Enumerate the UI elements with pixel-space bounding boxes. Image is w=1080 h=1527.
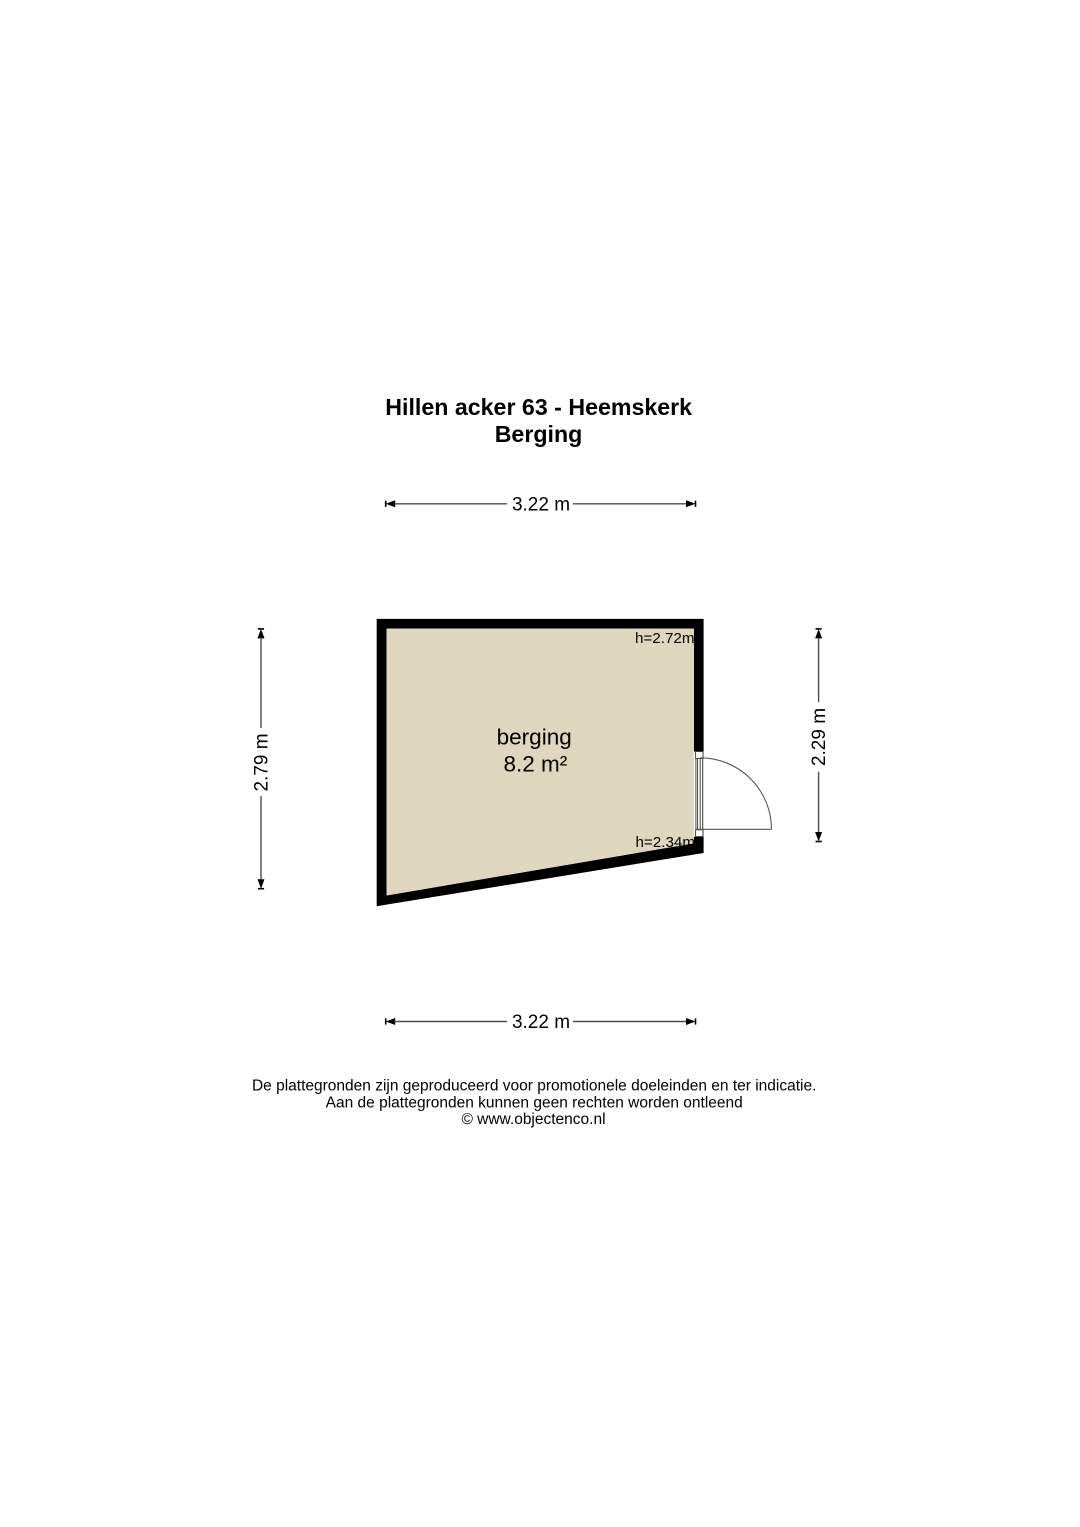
svg-text:Aan de plattegronden kunnen ge: Aan de plattegronden kunnen geen rechten…: [326, 1094, 743, 1111]
svg-text:h=2.34m: h=2.34m: [635, 834, 695, 851]
svg-text:Hillen acker 63 - Heemskerk: Hillen acker 63 - Heemskerk: [385, 394, 692, 420]
svg-text:3.22 m: 3.22 m: [512, 494, 570, 515]
svg-text:3.22 m: 3.22 m: [512, 1012, 570, 1033]
svg-text:2.79 m: 2.79 m: [251, 733, 272, 791]
svg-text:8.2 m²: 8.2 m²: [504, 751, 568, 776]
svg-text:2.29 m: 2.29 m: [809, 708, 830, 766]
svg-text:© www.objectenco.nl: © www.objectenco.nl: [461, 1111, 605, 1128]
svg-text:h=2.72m: h=2.72m: [635, 630, 695, 647]
svg-text:berging: berging: [497, 725, 572, 750]
svg-text:Berging: Berging: [495, 421, 583, 447]
svg-text:De plattegronden zijn geproduc: De plattegronden zijn geproduceerd voor …: [252, 1077, 816, 1094]
